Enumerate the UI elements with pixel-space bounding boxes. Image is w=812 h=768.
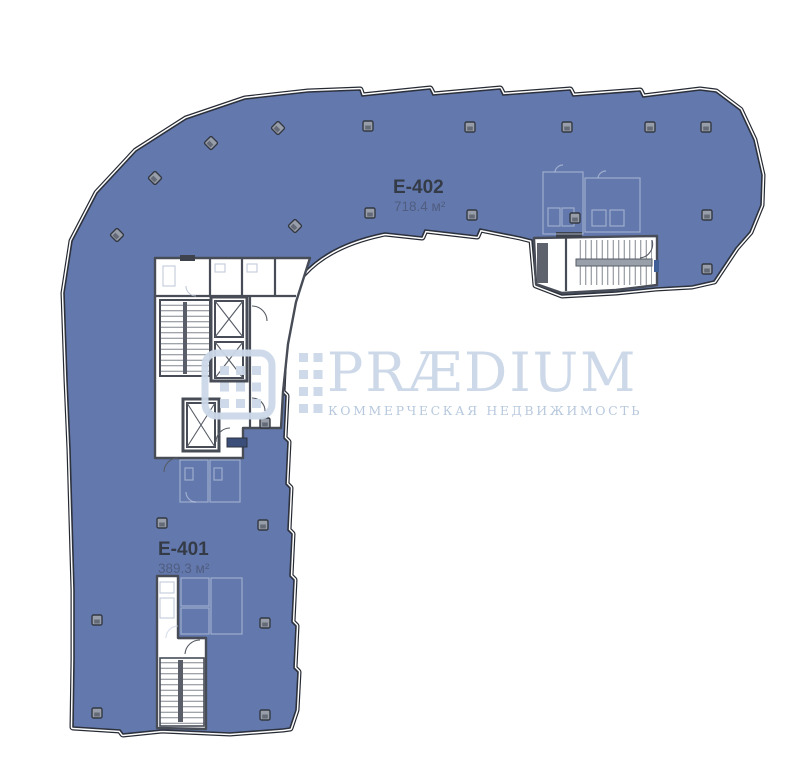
stair-sign [556, 232, 582, 238]
unit-e402-label: E-402 718.4 м² [393, 177, 446, 214]
unit-e402-code: E-402 [393, 177, 444, 198]
unit-e401-code: E-401 [158, 539, 209, 560]
watermark-tagline: КОММЕРЧЕСКАЯ НЕДВИЖИМОСТЬ [328, 403, 642, 418]
unit-e402-area: 718.4 м² [394, 199, 446, 214]
door-marker [227, 438, 247, 447]
door-sign [180, 255, 195, 261]
watermark-brand: PRÆDIUM [327, 341, 637, 404]
floor-plan-canvas: E-402 718.4 м² E-401 389.3 м² PRÆDIUM КО… [0, 0, 812, 768]
door-marker [654, 260, 659, 272]
floor-plan-svg: E-402 718.4 м² E-401 389.3 м² PRÆDIUM КО… [0, 0, 812, 768]
unit-e401-area: 389.3 м² [158, 561, 210, 576]
unit-e401-label: E-401 389.3 м² [158, 539, 210, 576]
elevator-shaft-lower [183, 399, 219, 451]
right-stair-core [534, 232, 659, 293]
